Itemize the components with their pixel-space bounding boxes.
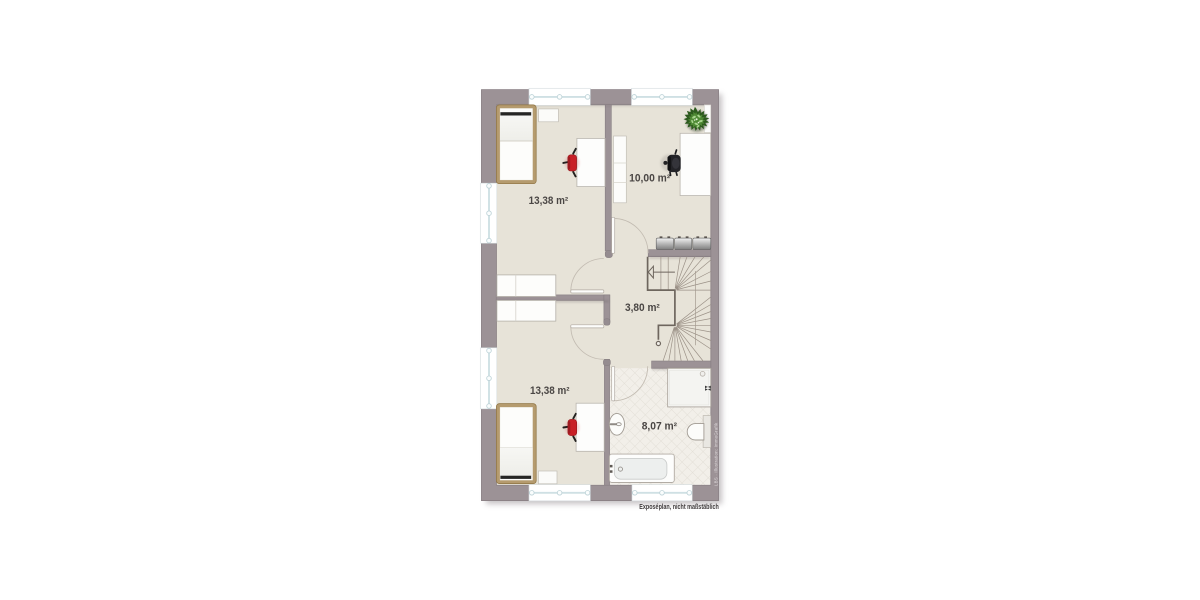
svg-text:8,07 m²: 8,07 m² [642,420,678,432]
svg-text:13,38 m²: 13,38 m² [530,385,570,397]
svg-text:LBS · Illustration: ImmoGrafik: LBS · Illustration: ImmoGrafik [713,422,718,486]
svg-text:10,00 m²: 10,00 m² [629,172,671,184]
svg-text:13,38 m²: 13,38 m² [529,195,569,207]
svg-text:3,80 m²: 3,80 m² [625,302,660,314]
svg-text:Exposéplan, nicht maßstäblich: Exposéplan, nicht maßstäblich [639,504,719,511]
